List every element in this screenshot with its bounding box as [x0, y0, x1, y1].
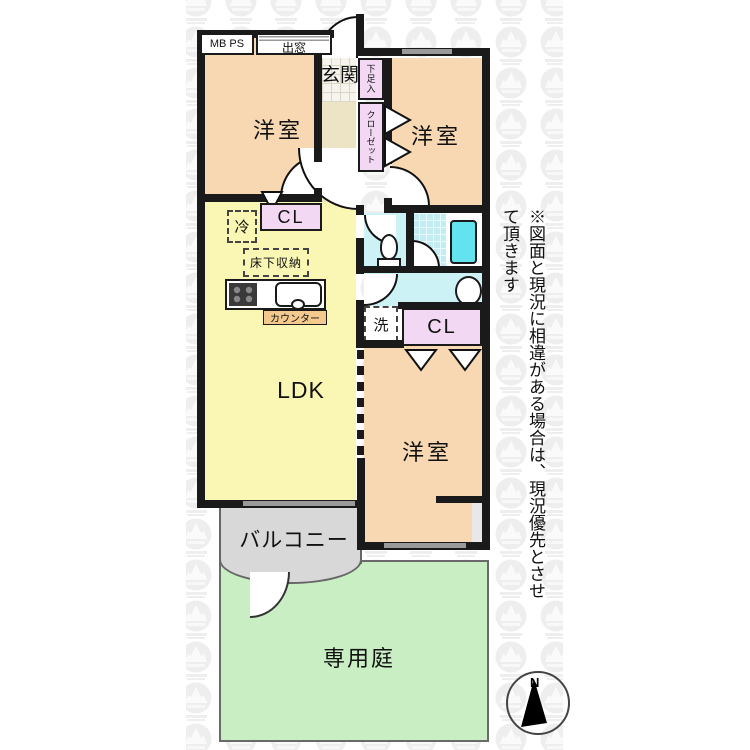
- wall: [384, 58, 392, 164]
- wall: [197, 194, 322, 202]
- window-end-tick: [376, 542, 384, 550]
- watermark-badge-icon: [493, 0, 529, 25]
- room-bottom-label: 洋室: [394, 438, 460, 464]
- disclaimer-text: ※図面と現況に相違がある場合は、現況優先とさせて頂きます: [522, 208, 548, 608]
- room-top-right-label: 洋室: [403, 122, 469, 148]
- faucet-icon: [291, 299, 305, 310]
- closet-lower: CL: [402, 308, 482, 346]
- watermark-badge-icon: [538, 67, 563, 107]
- bottom-room-side-window: [472, 498, 482, 544]
- underfloor-storage-label: 床下収納: [250, 254, 302, 271]
- closet-upper: CL: [260, 203, 322, 231]
- sliding-partition-dashed: [357, 350, 364, 460]
- watermark-badge-icon: [186, 0, 214, 25]
- room-ldk: [205, 202, 356, 500]
- watermark-badge-icon: [538, 0, 563, 25]
- garden-label: 専用庭: [322, 644, 396, 670]
- watermark-badge-icon: [186, 682, 214, 722]
- bay-window-box: 出窓: [256, 33, 332, 55]
- watermark-badge-icon: [223, 0, 259, 25]
- washer-space: 洗: [364, 306, 398, 342]
- compass: N: [500, 666, 576, 742]
- wall: [356, 340, 404, 348]
- watermark-badge-icon: [493, 26, 529, 66]
- refrigerator-space: 冷: [227, 210, 257, 243]
- watermark-badge-icon: [186, 600, 214, 640]
- watermark-badge-icon: [493, 149, 529, 189]
- closet-vertical: クローゼット: [358, 102, 384, 172]
- wall: [197, 30, 205, 508]
- watermark-badge-icon: [186, 559, 214, 599]
- balcony-label: バルコニー: [238, 527, 350, 551]
- stove-icon: [229, 283, 257, 306]
- watermark-badge-icon: [186, 518, 214, 558]
- wall: [406, 211, 414, 273]
- bathtub-icon: [450, 220, 477, 264]
- refrigerator-label: 冷: [234, 216, 249, 237]
- compass-icon: N: [500, 666, 576, 742]
- compass-north-label: N: [530, 675, 539, 690]
- watermark-badge-icon: [403, 0, 439, 25]
- wall: [314, 38, 322, 162]
- shoe-cabinet-label: 下足入: [365, 64, 378, 94]
- wall: [482, 48, 490, 550]
- underfloor-storage: 床下収納: [243, 248, 309, 277]
- cl-upper-label: CL: [277, 207, 304, 228]
- wall: [356, 238, 364, 274]
- ldk-label: LDK: [270, 376, 332, 404]
- window-bottom-room: [384, 543, 466, 548]
- watermark-badge-icon: [538, 108, 563, 148]
- floor-plan-canvas: 下足入 クローゼット CL CL 冷 床下収納 カウンター 洗 MB PS: [0, 0, 750, 750]
- watermark-badge-icon: [186, 723, 214, 750]
- mb-ps-label: MB PS: [210, 38, 244, 50]
- cl-lower-label: CL: [427, 316, 457, 339]
- counter-bar: カウンター: [263, 310, 327, 325]
- counter-label: カウンター: [270, 310, 320, 325]
- watermark-badge-icon: [493, 108, 529, 148]
- wall: [384, 205, 490, 213]
- wall: [356, 205, 364, 215]
- wall: [364, 266, 484, 273]
- watermark-badge-icon: [448, 0, 484, 25]
- mb-ps-box: MB PS: [200, 33, 254, 55]
- closet-label: クローゼット: [365, 110, 378, 164]
- watermark-badge-icon: [493, 67, 529, 107]
- entrance-label: 玄関: [318, 62, 362, 84]
- watermark-badge-icon: [538, 149, 563, 189]
- washer-label: 洗: [373, 314, 388, 335]
- watermark-badge-icon: [538, 26, 563, 66]
- bay-window-label: 出窓: [258, 41, 330, 53]
- watermark-badge-icon: [186, 641, 214, 681]
- window-ldk-balcony: [243, 501, 355, 506]
- room-top-left-label: 洋室: [245, 116, 311, 142]
- wall: [436, 496, 484, 503]
- window-top-right-room: [402, 49, 452, 54]
- watermark-badge-icon: [268, 0, 304, 25]
- toilet-bowl-icon: [380, 234, 398, 260]
